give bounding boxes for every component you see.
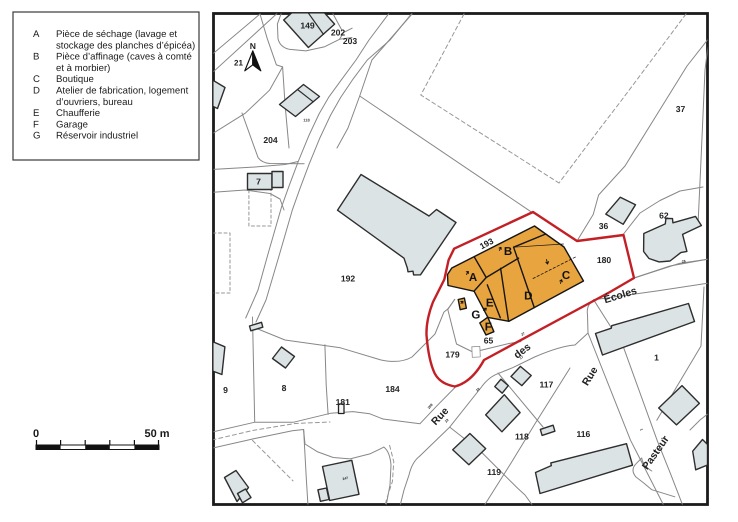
svg-text:C: C (33, 74, 40, 85)
svg-text:B: B (33, 52, 39, 63)
svg-text:E: E (33, 108, 39, 119)
svg-text:1: 1 (654, 353, 659, 363)
svg-text:117: 117 (539, 380, 553, 390)
svg-text:A: A (33, 29, 40, 40)
svg-text:65: 65 (484, 336, 494, 346)
svg-text:Pièce de séchage (lavage et: Pièce de séchage (lavage et (56, 29, 177, 40)
svg-text:d’ouvriers, bureau: d’ouvriers, bureau (56, 97, 133, 108)
svg-text:116: 116 (576, 429, 590, 439)
svg-text:N: N (250, 41, 256, 51)
svg-text:C: C (562, 270, 570, 282)
svg-text:180: 180 (597, 255, 612, 265)
svg-text:Garage: Garage (56, 119, 88, 130)
svg-text:D: D (33, 86, 40, 97)
svg-text:Réservoir industriel: Réservoir industriel (56, 131, 138, 142)
svg-text:F: F (485, 321, 492, 333)
svg-text:Pièce d’affinage (caves à comt: Pièce d’affinage (caves à comté (56, 52, 192, 63)
svg-text:E: E (486, 297, 494, 309)
svg-text:62: 62 (659, 211, 669, 221)
svg-text:118: 118 (515, 432, 529, 442)
svg-text:119: 119 (487, 467, 501, 477)
svg-text:204: 204 (263, 135, 278, 145)
svg-text:0: 0 (33, 428, 39, 440)
svg-text:21: 21 (234, 59, 243, 68)
svg-text:36: 36 (599, 221, 609, 231)
svg-text:A: A (469, 272, 477, 284)
svg-text:G: G (471, 309, 480, 321)
svg-text:8: 8 (282, 383, 287, 393)
svg-text:203: 203 (343, 36, 358, 46)
svg-text:118: 118 (303, 118, 310, 123)
svg-text:Atelier de fabrication, logeme: Atelier de fabrication, logement (56, 86, 189, 97)
svg-text:37: 37 (676, 104, 686, 114)
svg-text:G: G (33, 131, 40, 142)
svg-text:9: 9 (223, 385, 228, 395)
svg-text:7: 7 (256, 177, 261, 187)
svg-text:149: 149 (300, 21, 315, 31)
svg-text:D: D (524, 291, 532, 303)
svg-text:179: 179 (445, 350, 460, 360)
svg-text:181: 181 (336, 397, 351, 407)
svg-text:et à morbier): et à morbier) (56, 63, 110, 74)
svg-text:F: F (33, 119, 39, 130)
svg-text:192: 192 (341, 274, 356, 284)
svg-text:stockage des planches d’épicéa: stockage des planches d’épicéa) (56, 40, 195, 51)
svg-text:Chaufferie: Chaufferie (56, 108, 100, 119)
svg-text:50 m: 50 m (144, 428, 169, 440)
svg-text:184: 184 (385, 384, 400, 394)
svg-text:B: B (504, 246, 512, 258)
svg-text:Boutique: Boutique (56, 74, 94, 85)
